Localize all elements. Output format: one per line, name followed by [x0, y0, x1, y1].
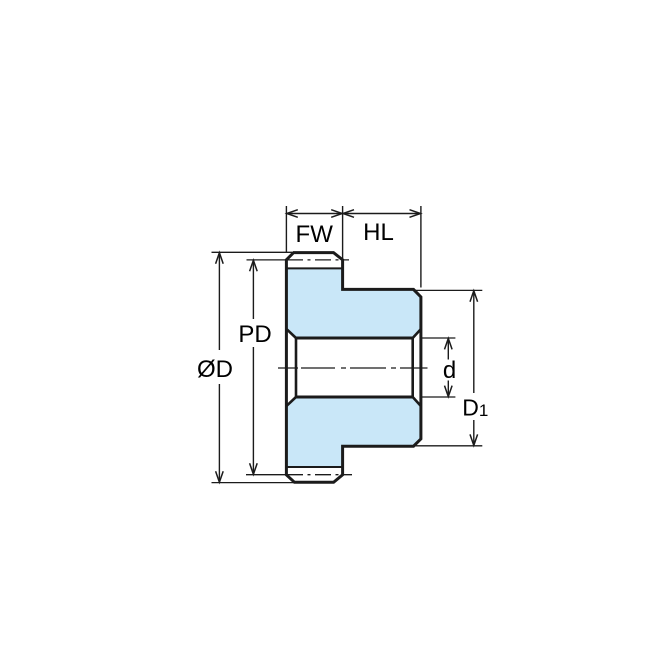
svg-text:ØD: ØD: [197, 356, 233, 383]
svg-text:HL: HL: [363, 219, 394, 246]
svg-text:PD: PD: [238, 321, 271, 348]
svg-text:FW: FW: [296, 221, 334, 248]
svg-text:d: d: [443, 357, 456, 384]
